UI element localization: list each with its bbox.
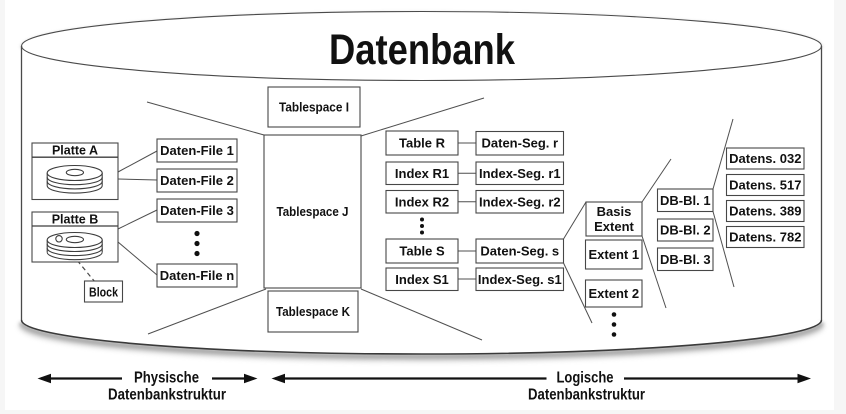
svg-text:DB-Bl. 3: DB-Bl. 3 <box>660 252 711 267</box>
svg-text:Index R2: Index R2 <box>395 194 449 209</box>
svg-text:Daten-File 1: Daten-File 1 <box>160 143 234 158</box>
svg-text:Daten-File 3: Daten-File 3 <box>160 203 234 218</box>
svg-text:Daten-File n: Daten-File n <box>160 268 234 283</box>
svg-text:Index-Seg. r2: Index-Seg. r2 <box>479 194 561 209</box>
svg-text:Extent 2: Extent 2 <box>589 286 640 301</box>
svg-text:Basis: Basis <box>597 204 632 219</box>
svg-text:Extent: Extent <box>594 219 634 234</box>
svg-text:Table S: Table S <box>399 244 445 259</box>
svg-text:Datens. 032: Datens. 032 <box>729 151 801 166</box>
svg-text:Index-Seg. s1: Index-Seg. s1 <box>478 272 562 287</box>
svg-text:DB-Bl. 1: DB-Bl. 1 <box>660 193 711 208</box>
svg-text:Datens. 517: Datens. 517 <box>729 178 801 193</box>
svg-text:Block: Block <box>89 285 119 300</box>
svg-text:Table R: Table R <box>399 136 446 151</box>
svg-text:Index S1: Index S1 <box>395 272 448 287</box>
svg-text:Datenbankstruktur: Datenbankstruktur <box>108 387 226 404</box>
svg-text:Datenbank: Datenbank <box>329 26 515 74</box>
svg-text:Platte A: Platte A <box>52 144 98 158</box>
svg-text:Index R1: Index R1 <box>395 166 449 181</box>
svg-text:DB-Bl. 2: DB-Bl. 2 <box>660 223 711 238</box>
svg-text:Daten-Seg. r: Daten-Seg. r <box>482 136 559 151</box>
svg-text:Daten-File 2: Daten-File 2 <box>160 173 234 188</box>
svg-text:Datenbankstruktur: Datenbankstruktur <box>528 387 645 404</box>
svg-text:Daten-Seg. s: Daten-Seg. s <box>480 244 559 259</box>
svg-text:Datens. 782: Datens. 782 <box>729 230 801 245</box>
svg-text:Datens. 389: Datens. 389 <box>729 204 801 219</box>
svg-text:Platte B: Platte B <box>52 213 99 227</box>
svg-text:Tablespace J: Tablespace J <box>277 204 349 219</box>
svg-text:Logische: Logische <box>557 370 614 387</box>
svg-text:Tablespace I: Tablespace I <box>279 100 349 115</box>
svg-text:Physische: Physische <box>134 370 199 387</box>
svg-text:Tablespace K: Tablespace K <box>276 304 351 319</box>
svg-text:Extent 1: Extent 1 <box>589 247 640 262</box>
svg-text:Index-Seg. r1: Index-Seg. r1 <box>479 166 561 181</box>
